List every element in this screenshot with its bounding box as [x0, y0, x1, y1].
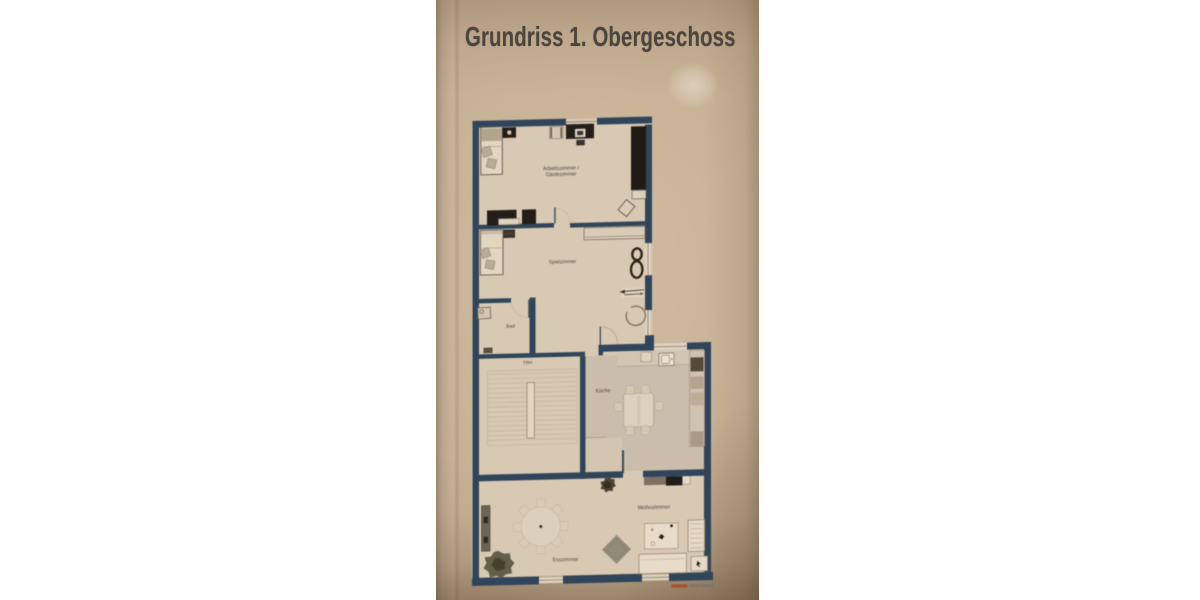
svg-text:Küche: Küche: [596, 388, 611, 394]
svg-text:Bad: Bad: [506, 323, 515, 329]
svg-text:Gästezimmer: Gästezimmer: [546, 171, 577, 178]
svg-text:Wohnzimmer: Wohnzimmer: [638, 505, 671, 512]
svg-text:TRH: TRH: [523, 360, 532, 365]
svg-text:Spielzimmer: Spielzimmer: [549, 259, 577, 266]
svg-text:Esszimmer: Esszimmer: [553, 557, 579, 564]
